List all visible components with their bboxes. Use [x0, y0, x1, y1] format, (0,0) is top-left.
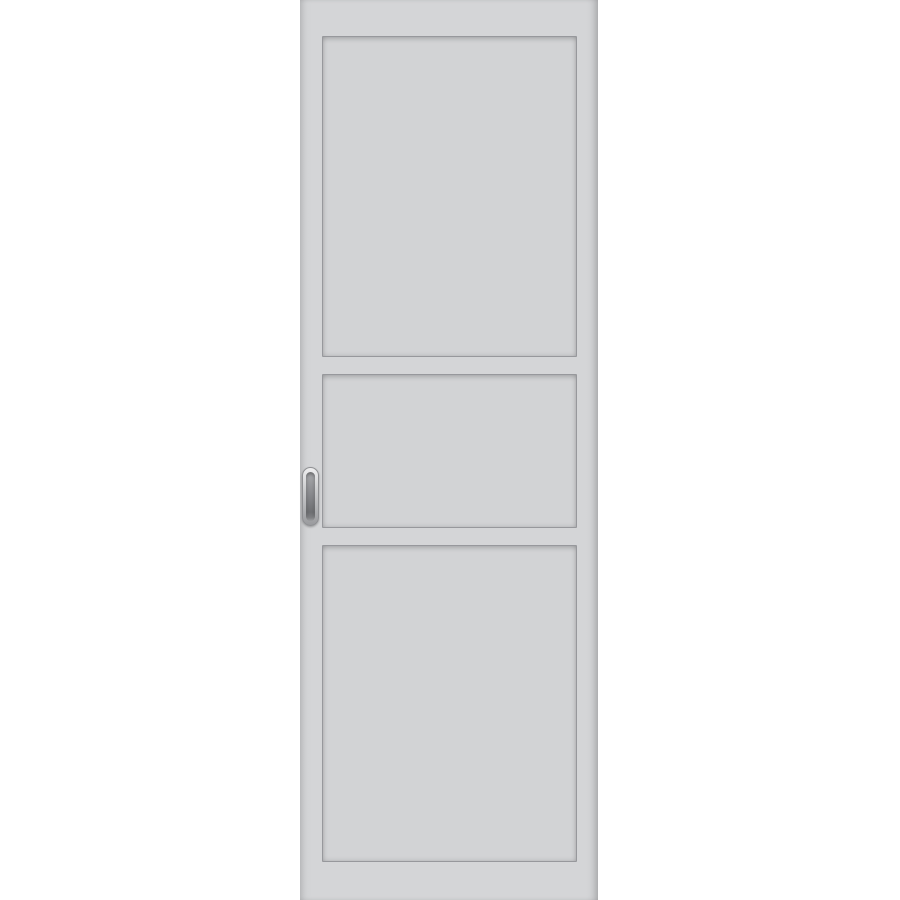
door-flush-pull-handle: [302, 467, 319, 526]
door-panel-middle: [322, 374, 577, 528]
handle-recess: [306, 472, 315, 521]
door-panel-top: [322, 36, 577, 357]
door-panel-bottom: [322, 545, 577, 862]
page-background: [0, 0, 900, 900]
door-leaf: [300, 0, 598, 900]
